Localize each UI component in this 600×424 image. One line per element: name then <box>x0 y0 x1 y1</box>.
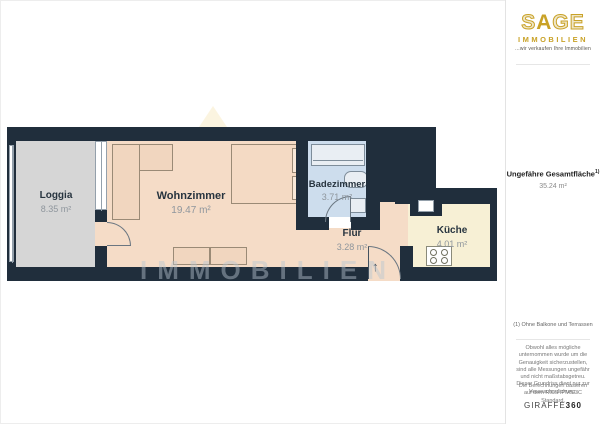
area-footnote: (1) Ohne Balkone und Terrassen <box>506 322 600 328</box>
room-label-wohnzimmer: Wohnzimmer <box>157 190 226 202</box>
room-area-loggia: 8.35 m² <box>41 204 72 214</box>
kitchen-sink <box>418 200 434 212</box>
room-label-kueche: Küche <box>437 225 468 236</box>
wall-wohnzimmer-bad <box>296 127 308 228</box>
wall-kueche-top <box>395 188 497 204</box>
sofa-side-section <box>112 144 140 220</box>
stove-burner-icon <box>441 257 448 264</box>
wall-kueche-left-stub <box>400 246 413 267</box>
room-area-flur: 3.28 m² <box>337 242 368 252</box>
sideboard-right <box>210 247 247 265</box>
bathtub <box>311 144 365 166</box>
entrance-arrow-icon: ↑ <box>372 260 379 273</box>
wall-kueche-right <box>490 188 497 281</box>
sage-logo-wordmark: SAGE <box>506 12 600 33</box>
wall-top <box>7 127 390 141</box>
bathtub-inner-line <box>313 160 363 161</box>
sidebar-divider-top <box>516 64 590 65</box>
footnote-marker: 1) <box>595 169 599 175</box>
room-flur-floor-upper <box>380 202 408 230</box>
sidebar: SAGE IMMOBILIEN ...wir verkaufen Ihre Im… <box>505 0 600 424</box>
room-area-kueche: 4.01 m² <box>437 239 468 249</box>
toilet <box>350 198 366 213</box>
sage-logo: SAGE IMMOBILIEN ...wir verkaufen Ihre Im… <box>506 12 600 52</box>
room-label-loggia: Loggia <box>40 190 73 201</box>
stove-burner-icon <box>430 257 437 264</box>
loggia-side-window <box>9 145 14 262</box>
room-label-flur: Flur <box>343 228 362 239</box>
total-area-label: Ungefähre Gesamtfläche1) <box>506 169 600 179</box>
wall-loggia-mid-stub <box>95 210 107 222</box>
wall-bad-right <box>366 127 380 230</box>
wall-bottom-right <box>400 267 497 281</box>
room-area-badezimmer: 3.71 m² <box>322 192 353 202</box>
loggia-wohnzimmer-window <box>95 141 107 210</box>
stove-burner-icon <box>430 249 437 256</box>
stove-burner-icon <box>441 249 448 256</box>
sage-logo-subtitle: IMMOBILIEN <box>506 35 600 44</box>
wall-bad-bottom-left <box>296 217 329 230</box>
total-area-value: 35.24 m² <box>506 183 600 190</box>
stove <box>426 246 452 266</box>
giraffe360-logo: GIRAFFE360 <box>506 401 600 410</box>
floorplan-canvas: ↑ Loggia 8.35 m² Wohnzimmer 19.47 m² Bad… <box>0 0 505 424</box>
sideboard-left <box>173 247 210 265</box>
floorplan-page: ↑ Loggia 8.35 m² Wohnzimmer 19.47 m² Bad… <box>0 0 600 424</box>
loggia-door-threshold <box>95 222 107 248</box>
room-area-wohnzimmer: 19.47 m² <box>171 205 210 216</box>
sage-logo-tagline: ...wir verkaufen Ihre Immobilien <box>506 46 600 52</box>
room-label-badezimmer: Badezimmer <box>309 179 366 190</box>
wall-bottom-left <box>7 267 368 281</box>
wall-loggia-lower-stub <box>95 246 107 267</box>
sidebar-divider-bottom <box>516 339 590 340</box>
